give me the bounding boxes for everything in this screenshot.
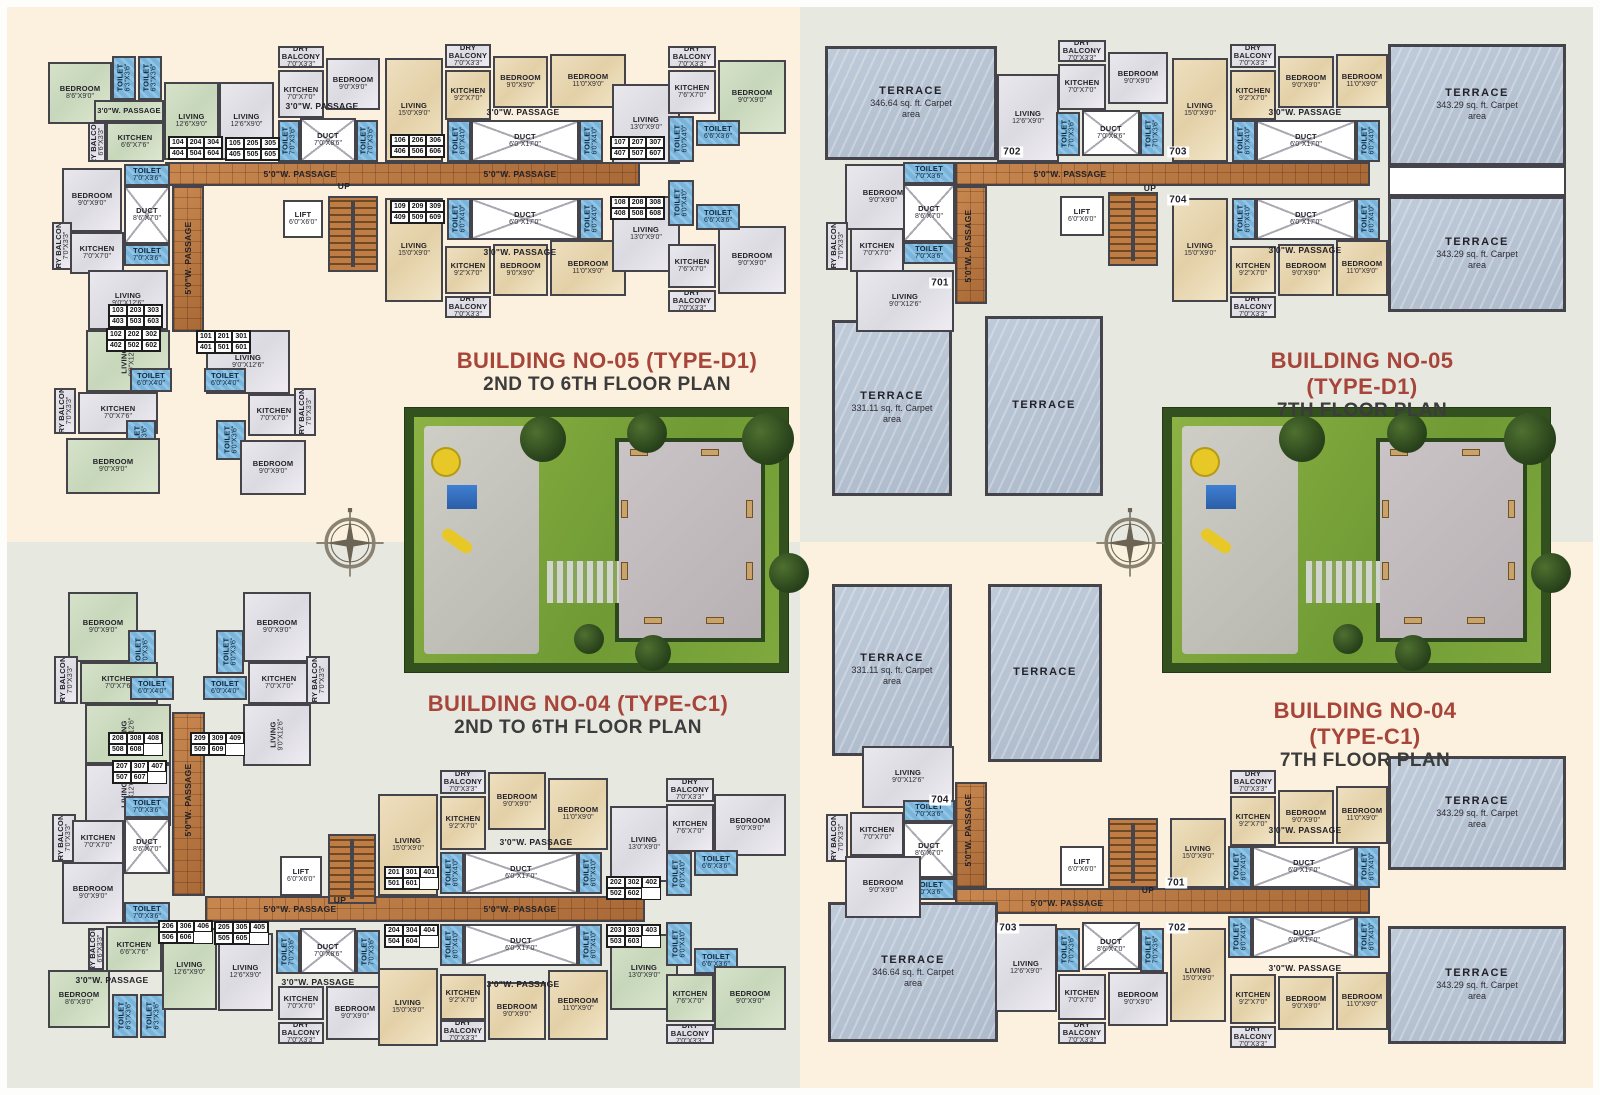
room-label: LIFT6'0"X6'0" bbox=[1068, 858, 1096, 873]
plate-row: 501601 bbox=[385, 878, 438, 889]
room-bedroom: BEDROOM9'0"X9'0" bbox=[1108, 972, 1168, 1026]
room-label: TERRACE343.29 sq. ft. Carpet area bbox=[1432, 237, 1522, 270]
room-label: KITCHEN9'2"X7'0" bbox=[1236, 262, 1271, 277]
room-label: BEDROOM9'0"X9'0" bbox=[1286, 74, 1327, 89]
unit-number-plate: 206306406506606 bbox=[158, 920, 213, 944]
bench-icon bbox=[1468, 618, 1484, 623]
room-label: KITCHEN7'0"X7'0" bbox=[81, 834, 116, 849]
room-label: KITCHEN7'6"X7'0" bbox=[673, 990, 708, 1005]
room-duct: DUCT6'0"X17'0" bbox=[464, 924, 578, 966]
plate-row: 408508608 bbox=[611, 208, 664, 219]
room-label: BEDROOM9'0"X9'0" bbox=[1286, 809, 1327, 824]
plate-row: 107207307 bbox=[611, 137, 664, 148]
room-kitchen: KITCHEN7'0"X7'0" bbox=[850, 812, 904, 856]
room-label: LIVING12'6"X9'0" bbox=[231, 113, 263, 128]
plan-label-5-0-w-passage: 5'0"W. PASSAGE bbox=[1034, 169, 1107, 179]
room-toilet: TOILET6'0"X4'0" bbox=[579, 120, 603, 162]
unit-number-plate: 108208308408508608 bbox=[610, 196, 665, 220]
plan-label-3-0-w-passage: 3'0"W. PASSAGE bbox=[286, 101, 359, 111]
room-label: LIFT6'0"X6'0" bbox=[289, 211, 317, 226]
plan-label-704: 704 bbox=[1167, 195, 1189, 206]
room-toilet: TOILET6'0"X4'0" bbox=[668, 180, 694, 226]
room-lift: LIFT6'0"X6'0" bbox=[1060, 846, 1104, 886]
room-label: TOILET6'3"X3'6" bbox=[142, 64, 157, 92]
plate-row: 104204304 bbox=[169, 137, 222, 148]
room-toilet: TOILET6'0"X4'0" bbox=[1356, 198, 1380, 240]
room-bedroom: BEDROOM9'0"X9'0" bbox=[62, 862, 124, 924]
room-bedroom: BEDROOM9'0"X9'0" bbox=[240, 440, 306, 495]
room-label: TERRACE bbox=[1012, 400, 1076, 412]
plan-label-3-0-w-passage: 3'0"W. PASSAGE bbox=[282, 977, 355, 987]
room-bedroom: BEDROOM9'0"X9'0" bbox=[243, 592, 311, 662]
room-toilet: TOILET6'0"X4'0" bbox=[447, 198, 471, 240]
room-label: LIVING15'0"X9'0" bbox=[398, 102, 430, 117]
room-label: DUCT6'0"X17'0" bbox=[1290, 211, 1322, 226]
room-label: DRY BALCONY7'0"X3'3" bbox=[57, 388, 72, 434]
floor-subtitle: 2ND TO 6TH FLOOR PLAN bbox=[457, 374, 758, 396]
room-label: TERRACE346.64 sq. ft. Carpet area bbox=[868, 955, 958, 988]
room-label: TOILET6'0"X4'0" bbox=[673, 125, 688, 153]
garden-render-left bbox=[405, 408, 788, 672]
plan-label-3-0-w-passage: 3'0"W. PASSAGE bbox=[1269, 963, 1342, 973]
room-label: KITCHEN7'0"X7'0" bbox=[860, 826, 895, 841]
bench-icon bbox=[622, 501, 627, 517]
room-label: TOILET7'0"X3'6" bbox=[1060, 120, 1075, 148]
floor-subtitle: 7TH FLOOR PLAN bbox=[1248, 750, 1483, 772]
bench-icon bbox=[1463, 450, 1479, 455]
room-label: DRY BALCONY7'0"X3'3" bbox=[447, 296, 489, 318]
plate-row: 206306406 bbox=[159, 921, 212, 932]
room-label: TOILET6'0"X4'0" bbox=[671, 860, 686, 888]
room-toilet: TOILET6'0"X4'0" bbox=[204, 368, 246, 392]
room-label: LIVING15'0"X9'0" bbox=[392, 837, 424, 852]
room-label: TERRACE343.29 sq. ft. Carpet area bbox=[1432, 968, 1522, 1001]
plan-label-703: 703 bbox=[1167, 147, 1189, 158]
bench-icon bbox=[1383, 501, 1388, 517]
room-label: TOILET6'0"X3'6" bbox=[222, 638, 237, 666]
room-label: DUCT6'0"X17'0" bbox=[505, 865, 537, 880]
room-kitchen: KITCHEN7'0"X7'0" bbox=[1058, 64, 1106, 110]
room-label: LIVING12'6"X9'0" bbox=[174, 961, 206, 976]
room-s bbox=[328, 196, 378, 272]
room-label: DRY BALCONY7'0"X3'3" bbox=[56, 814, 71, 862]
room-duct: DUCT6'0"X17'0" bbox=[1252, 916, 1356, 958]
room-label: TOILET7'0"X3'6" bbox=[1144, 120, 1159, 148]
room-kitchen: KITCHEN7'0"X7'0" bbox=[1058, 974, 1106, 1020]
room-duct: DUCT7'0"X8'6" bbox=[1082, 110, 1140, 156]
unit-number-plate: 208308408508608 bbox=[108, 732, 163, 756]
plan-label-5-0-w-passage: 5'0"W. PASSAGE bbox=[484, 904, 557, 914]
plan-label-702: 702 bbox=[1166, 923, 1188, 934]
room-label: LIVING12'6"X9'0" bbox=[1012, 110, 1044, 125]
room-toilet: TOILET7'0"X3'6" bbox=[903, 242, 955, 264]
room-label: TOILET7'0"X3'6" bbox=[1060, 936, 1075, 964]
room-toilet: TOILET6'6"X3'6" bbox=[696, 120, 740, 146]
unit-number-plate: 104204304404504604 bbox=[168, 136, 223, 160]
room-label: DUCT7'0"X8'6" bbox=[1097, 125, 1125, 140]
plate-row: 102202302 bbox=[107, 329, 160, 340]
room-dry-balcony: DRY BALCONY7'0"X3'3" bbox=[445, 44, 491, 68]
room-label: LIVING9'0"X12'6" bbox=[889, 293, 921, 308]
plate-row: 404504604 bbox=[169, 148, 222, 159]
room-label: DRY BALCONY7'0"X3'3" bbox=[297, 388, 312, 436]
room-label: TOILET6'0"X4'0" bbox=[671, 930, 686, 958]
room-toilet: TOILET6'0"X4'0" bbox=[440, 924, 464, 966]
room-kitchen: KITCHEN7'0"X7'0" bbox=[70, 232, 124, 274]
room-label: TOILET6'0"X4'0" bbox=[583, 127, 598, 155]
slide-chute-icon bbox=[1198, 527, 1233, 556]
plate-row: 105205305 bbox=[226, 138, 279, 149]
bench-icon bbox=[622, 563, 627, 579]
room-label: TOILET6'0"X4'0" bbox=[444, 931, 459, 959]
room-label: LIVING13'0"X9'0" bbox=[628, 964, 660, 979]
plate-row: 109209309 bbox=[391, 201, 444, 212]
room-label: KITCHEN7'0"X7'0" bbox=[284, 86, 319, 101]
room-kitchen: KITCHEN6'6"X7'6" bbox=[106, 926, 162, 972]
room-duct: DUCT7'0"X8'6" bbox=[300, 928, 356, 974]
room-dry-balcony: DRY BALCONY7'0"X3'3" bbox=[1058, 1022, 1106, 1044]
room-label: DRY BALCONY7'0"X3'3" bbox=[1060, 1022, 1104, 1044]
room-bedroom: BEDROOM9'0"X9'0" bbox=[714, 794, 786, 856]
room-dry-balcony: DRY BALCONY7'0"X3'3" bbox=[666, 778, 714, 802]
room-3-0-w-passage: 3'0"W. PASSAGE bbox=[94, 100, 164, 122]
bush-icon bbox=[742, 413, 794, 465]
bench-icon bbox=[747, 501, 752, 517]
room-label: BEDROOM11'0"X9'0" bbox=[1342, 73, 1383, 88]
plan-label-704: 704 bbox=[929, 795, 951, 806]
plan-title-building5-top: BUILDING NO-05 (TYPE-D1) 7TH FLOOR PLAN bbox=[1243, 348, 1481, 422]
room-label: DRY BALCONY7'0"X3'3" bbox=[447, 44, 489, 67]
room-label: KITCHEN9'2"X7'0" bbox=[446, 815, 481, 830]
room-living: LIVING9'0"X12'6" bbox=[243, 704, 311, 766]
room-kitchen: KITCHEN7'6"X7'0" bbox=[666, 804, 714, 852]
plate-row: 406506606 bbox=[391, 146, 444, 157]
floor-subtitle: 7TH FLOOR PLAN bbox=[1243, 400, 1481, 422]
room-bedroom: BEDROOM9'0"X9'0" bbox=[1108, 52, 1168, 104]
bench-icon bbox=[1509, 501, 1514, 517]
unit-number-plate: 103203303403503603 bbox=[108, 304, 163, 328]
plate-row: 201301401 bbox=[385, 867, 438, 878]
plate-row: 407507607 bbox=[611, 148, 664, 159]
room-label: TOILET7'0"X3'6" bbox=[133, 905, 161, 920]
room-label: BEDROOM9'0"X9'0" bbox=[732, 252, 773, 267]
room-label: LIVING15'0"X9'0" bbox=[1182, 967, 1214, 982]
building-title: BUILDING NO-05 (TYPE-D1) bbox=[1243, 348, 1481, 400]
bench-icon bbox=[702, 450, 718, 455]
room-label: BEDROOM8'6"X9'0" bbox=[59, 991, 100, 1006]
room-label: BEDROOM11'0"X9'0" bbox=[558, 806, 599, 821]
room-kitchen: KITCHEN9'2"X7'0" bbox=[445, 70, 491, 120]
room-kitchen: KITCHEN7'0"X7'0" bbox=[248, 662, 310, 704]
room-terrace: TERRACE346.64 sq. ft. Carpet area bbox=[828, 902, 998, 1042]
plate-row: 503603 bbox=[607, 936, 660, 947]
room-label: DRY BALCONY7'0"X3'3" bbox=[310, 656, 325, 704]
room-toilet: TOILET6'3"X3'6" bbox=[112, 994, 138, 1038]
room-living: LIVING15'0"X9'0" bbox=[378, 968, 438, 1046]
room-label: TOILET6'0"X4'0" bbox=[137, 372, 165, 387]
room-label: DRY BALCONY7'0"X3'3" bbox=[668, 778, 712, 801]
plan-label-5-0-w-passage: 5'0"W. PASSAGE bbox=[183, 764, 193, 837]
plan-label-3-0-w-passage: 3'0"W. PASSAGE bbox=[76, 975, 149, 985]
plate-row: 203303403 bbox=[607, 925, 660, 936]
room-dry-balcony: DRY BALCONY7'0"X3'3" bbox=[440, 770, 486, 794]
room-label: LIVING13'0"X9'0" bbox=[630, 226, 662, 241]
unit-number-plate: 205305405505605 bbox=[214, 921, 269, 945]
room-label: LIVING15'0"X9'0" bbox=[398, 242, 430, 257]
plan-label-5-0-w-passage: 5'0"W. PASSAGE bbox=[484, 169, 557, 179]
room-dry-balcony: DRY BALCONY7'0"X3'3" bbox=[1230, 296, 1276, 318]
room-label: TOILET6'0"X4'0" bbox=[451, 205, 466, 233]
room-toilet: TOILET6'0"X4'0" bbox=[1228, 916, 1252, 958]
plate-row: 204304404 bbox=[385, 925, 438, 936]
room-label: KITCHEN9'2"X7'0" bbox=[1236, 813, 1271, 828]
room-label: KITCHEN7'6"X7'0" bbox=[673, 820, 708, 835]
plan-label-5-0-w-passage: 5'0"W. PASSAGE bbox=[264, 904, 337, 914]
room-bedroom: BEDROOM11'0"X9'0" bbox=[1336, 972, 1388, 1030]
room-label: LIVING12'6"X9'0" bbox=[1010, 960, 1042, 975]
room-label: BEDROOM11'0"X9'0" bbox=[1342, 807, 1383, 822]
room-label: DRY BALCONY7'0"X3'3" bbox=[1232, 296, 1274, 318]
room-terrace: TERRACE331.11 sq. ft. Carpet area bbox=[832, 584, 952, 756]
play-equipment-icon bbox=[1206, 485, 1236, 509]
bench-icon bbox=[1383, 563, 1388, 579]
plan-label-3-0-w-passage: 3'0"W. PASSAGE bbox=[1269, 107, 1342, 117]
room-dry-balcony: DRY BALCONY7'0"X3'3" bbox=[278, 46, 324, 68]
room-dry-balcony: DRY BALCONY6'6"X3'3" bbox=[88, 928, 104, 970]
room-duct: DUCT8'6"X7'0" bbox=[903, 184, 955, 242]
plan-label-3-0-w-passage: 3'0"W. PASSAGE bbox=[1269, 825, 1342, 835]
room-toilet: TOILET6'0"X4'0" bbox=[579, 198, 603, 240]
room-label: TERRACE331.11 sq. ft. Carpet area bbox=[847, 653, 937, 686]
room-label: KITCHEN7'0"X7'0" bbox=[257, 407, 292, 422]
plan-title-building4-top: BUILDING NO-04 (TYPE-C1) 7TH FLOOR PLAN bbox=[1248, 698, 1483, 772]
play-area-paving bbox=[424, 426, 539, 653]
plan-label-3-0-w-passage: 3'0"W. PASSAGE bbox=[487, 107, 560, 117]
room-label: DUCT6'0"X17'0" bbox=[509, 211, 541, 226]
bench-icon bbox=[747, 563, 752, 579]
room-bedroom: BEDROOM9'0"X9'0" bbox=[326, 986, 384, 1040]
room-p bbox=[955, 162, 1370, 186]
plaza-paving bbox=[1380, 442, 1523, 637]
room-toilet: TOILET6'0"X3'6" bbox=[216, 630, 244, 674]
plan-label-up: UP bbox=[1142, 885, 1154, 895]
room-bedroom: BEDROOM9'0"X9'0" bbox=[718, 226, 786, 294]
unit-number-plate: 202302402502602 bbox=[606, 876, 661, 900]
room-bedroom: BEDROOM9'0"X9'0" bbox=[66, 438, 160, 494]
room-label: TOILET6'3"X3'6" bbox=[116, 64, 131, 92]
room-duct: DUCT6'0"X17'0" bbox=[471, 120, 579, 162]
room-label: TOILET6'6"X3'6" bbox=[704, 209, 732, 224]
room-p bbox=[955, 888, 1370, 914]
bush-icon bbox=[520, 416, 566, 462]
plate-row: 202302402 bbox=[607, 877, 660, 888]
room-toilet: TOILET7'0"X3'6" bbox=[124, 244, 170, 266]
room-label: TOILET7'0"X3'6" bbox=[133, 247, 161, 262]
room-toilet: TOILET6'0"X4'0" bbox=[666, 922, 692, 966]
room-label: BEDROOM11'0"X9'0" bbox=[1342, 993, 1383, 1008]
room-label: DRY BALCONY7'0"X3'3" bbox=[442, 1020, 484, 1042]
room-dry-balcony: DRY BALCONY7'0"X3'3" bbox=[1058, 40, 1106, 62]
room-label: TOILET6'0"X4'0" bbox=[211, 372, 239, 387]
plan-label-5-0-w-passage: 5'0"W. PASSAGE bbox=[963, 210, 973, 283]
slide-chute-icon bbox=[440, 527, 475, 556]
compass-icon bbox=[315, 508, 385, 578]
room-living: LIVING12'6"X9'0" bbox=[995, 924, 1057, 1012]
room-label: BEDROOM9'0"X9'0" bbox=[335, 1005, 376, 1020]
plan-label-3-0-w-passage: 3'0"W. PASSAGE bbox=[487, 979, 560, 989]
room-label: BEDROOM9'0"X9'0" bbox=[253, 460, 294, 475]
room-dry-balcony: DRY BALCONY7'0"X3'3" bbox=[440, 1020, 486, 1042]
room-label: DUCT6'0"X17'0" bbox=[1288, 859, 1320, 874]
plan-title-building5-lower: BUILDING NO-05 (TYPE-D1) 2ND TO 6TH FLOO… bbox=[457, 348, 758, 396]
bush-icon bbox=[574, 624, 604, 654]
room-dry-balcony: DRY BALCONY7'0"X3'3" bbox=[1230, 1026, 1276, 1048]
room-label: KITCHEN7'0"X7'0" bbox=[80, 245, 115, 260]
room-toilet: TOILET6'0"X4'0" bbox=[1356, 120, 1380, 162]
room-toilet: TOILET6'0"X4'0" bbox=[203, 676, 247, 700]
room-label: BEDROOM9'0"X9'0" bbox=[730, 990, 771, 1005]
room-p bbox=[165, 162, 640, 186]
room-label: TOILET6'0"X4'0" bbox=[138, 680, 166, 695]
room-terrace: TERRACE331.11 sq. ft. Carpet area bbox=[832, 320, 952, 496]
room-label: TERRACE331.11 sq. ft. Carpet area bbox=[847, 391, 937, 424]
plan-label-702: 702 bbox=[1001, 147, 1023, 158]
room-label: KITCHEN9'2"X7'0" bbox=[1236, 87, 1271, 102]
bush-icon bbox=[1279, 416, 1325, 462]
plan-label-up: UP bbox=[1144, 183, 1156, 193]
room-label: TOILET6'0"X4'0" bbox=[1360, 853, 1375, 881]
building-title: BUILDING NO-04 (TYPE-C1) bbox=[428, 691, 729, 717]
bench-icon bbox=[645, 618, 661, 623]
room-label: TERRACE343.29 sq. ft. Carpet area bbox=[1432, 796, 1522, 829]
room-bedroom: BEDROOM9'0"X9'0" bbox=[845, 856, 921, 918]
room-label: TOILET7'0"X3'6" bbox=[359, 127, 374, 155]
room-label: DRY BALCONY7'0"X3'3" bbox=[829, 222, 844, 270]
slide-top-icon bbox=[1192, 449, 1218, 475]
plate-row: 401501601 bbox=[197, 342, 250, 353]
room-label: TOILET7'0"X3'6" bbox=[133, 167, 161, 182]
room-label: DUCT7'0"X8'6" bbox=[314, 943, 342, 958]
room-label: BEDROOM11'0"X9'0" bbox=[568, 73, 609, 88]
play-area-paving bbox=[1182, 426, 1298, 653]
room-label: DUCT6'0"X17'0" bbox=[1290, 133, 1322, 148]
plaza-paving bbox=[619, 442, 761, 637]
room-label: DRY BALCONY7'0"X3'3" bbox=[1232, 44, 1274, 67]
room-label: BEDROOM9'0"X9'0" bbox=[83, 619, 124, 634]
room-toilet: TOILET6'3"X3'6" bbox=[138, 56, 162, 100]
room-label: BEDROOM9'0"X9'0" bbox=[1118, 70, 1159, 85]
room-toilet: TOILET6'0"X4'0" bbox=[666, 852, 692, 896]
plate-row: 402502602 bbox=[107, 340, 160, 351]
room-label: KITCHEN9'2"X7'0" bbox=[1236, 991, 1271, 1006]
room-label: DRY BALCONY7'0"X3'3" bbox=[442, 770, 484, 793]
plan-label-3-0-w-passage: 3'0"W. PASSAGE bbox=[500, 837, 573, 847]
room-label: BEDROOM11'0"X9'0" bbox=[568, 260, 609, 275]
room-bedroom: BEDROOM11'0"X9'0" bbox=[1336, 786, 1388, 844]
room-bedroom: BEDROOM9'0"X9'0" bbox=[488, 772, 546, 830]
room-label: TOILET6'0"X4'0" bbox=[673, 189, 688, 217]
room-label: DRY BALCONY7'0"X3'3" bbox=[829, 814, 844, 862]
bench-icon bbox=[1405, 618, 1421, 623]
bush-icon bbox=[1504, 413, 1556, 465]
unit-number-plate: 203303403503603 bbox=[606, 924, 661, 948]
bench-icon bbox=[707, 618, 723, 623]
room-label: LIVING15'0"X9'0" bbox=[1184, 102, 1216, 117]
room-label: TOILET6'0"X4'0" bbox=[1236, 127, 1251, 155]
room-kitchen: KITCHEN9'2"X7'0" bbox=[1230, 974, 1276, 1024]
room-label: TOILET6'0"X4'0" bbox=[1236, 205, 1251, 233]
unit-number-plate: 209309409509609 bbox=[190, 732, 245, 756]
unit-number-plate: 204304404504604 bbox=[384, 924, 439, 948]
room-kitchen: KITCHEN9'2"X7'0" bbox=[1230, 796, 1276, 846]
room-label: BEDROOM9'0"X9'0" bbox=[1286, 995, 1327, 1010]
plan-label-3-0-w-passage: 3'0"W. PASSAGE bbox=[1269, 245, 1342, 255]
room-toilet: TOILET7'0"X3'6" bbox=[1140, 928, 1164, 972]
room-label: LIVING15'0"X9'0" bbox=[392, 999, 424, 1014]
room-s bbox=[328, 834, 376, 904]
room-s bbox=[1108, 818, 1158, 888]
plan-label-up: UP bbox=[334, 895, 346, 905]
plan-label-5-0-w-passage: 5'0"W. PASSAGE bbox=[264, 169, 337, 179]
room-label: KITCHEN9'2"X7'0" bbox=[451, 87, 486, 102]
play-equipment-icon bbox=[447, 485, 477, 509]
room-toilet: TOILET6'0"X4'0" bbox=[1228, 846, 1252, 888]
room-duct: DUCT6'0"X17'0" bbox=[1252, 846, 1356, 888]
room-label: DRY BALCONY7'0"X3'3" bbox=[58, 656, 73, 704]
plate-row: 209309409 bbox=[191, 733, 244, 744]
room-toilet: TOILET6'0"X4'0" bbox=[578, 924, 602, 966]
room-label: KITCHEN7'0"X7'0" bbox=[284, 995, 319, 1010]
room-toilet: TOILET6'6"X3'6" bbox=[694, 850, 738, 876]
room-label: LIVING9'0"X12'6" bbox=[892, 769, 924, 784]
room-bedroom: BEDROOM9'0"X9'0" bbox=[493, 56, 548, 108]
room-bedroom: BEDROOM11'0"X9'0" bbox=[1336, 240, 1388, 296]
garden-render-right bbox=[1163, 408, 1550, 672]
plan-label-701: 701 bbox=[1165, 878, 1187, 889]
room-toilet: TOILET6'0"X4'0" bbox=[447, 120, 471, 162]
room-toilet: TOILET7'0"X3'6" bbox=[1140, 112, 1164, 156]
room-label: TOILET7'0"X3'6" bbox=[915, 165, 943, 180]
room-label: TERRACE346.64 sq. ft. Carpet area bbox=[866, 86, 956, 119]
room-label: TOILET7'0"X3'6" bbox=[915, 245, 943, 260]
room-duct: DUCT8'6"X7'0" bbox=[124, 186, 170, 244]
bush-icon bbox=[1395, 635, 1431, 671]
room-duct: DUCT7'0"X8'6" bbox=[300, 118, 356, 162]
room-dry-balcony: DRY BALCONY7'0"X3'3" bbox=[294, 388, 316, 436]
room-label: TOILET6'0"X4'0" bbox=[1360, 923, 1375, 951]
room-label: DUCT8'6"X7'0" bbox=[915, 205, 943, 220]
room-label: DRY BALCONY7'0"X3'3" bbox=[280, 1022, 322, 1044]
unit-number-plate: 107207307407507607 bbox=[610, 136, 665, 160]
room-toilet: TOILET6'0"X4'0" bbox=[1232, 198, 1256, 240]
plate-row: 409509609 bbox=[391, 212, 444, 223]
room-label: DRY BALCONY7'0"X3'3" bbox=[1232, 1026, 1274, 1048]
plate-row: 505605 bbox=[215, 933, 268, 944]
compass-icon bbox=[1095, 508, 1165, 578]
room-label: LIVING15'0"X9'0" bbox=[1182, 845, 1214, 860]
room-terrace: TERRACE346.64 sq. ft. Carpet area bbox=[825, 46, 997, 160]
room-label: BEDROOM8'6"X9'0" bbox=[60, 85, 101, 100]
room-toilet: TOILET7'0"X3'6" bbox=[1056, 928, 1080, 972]
room-dry-balcony: DRY BALCONY7'0"X3'3" bbox=[1230, 44, 1276, 68]
walkway-path bbox=[1306, 561, 1380, 603]
room-toilet: TOILET6'3"X3'6" bbox=[112, 56, 136, 100]
room-label: 3'0"W. PASSAGE bbox=[97, 107, 160, 115]
room-label: DUCT8'6"X7'0" bbox=[133, 838, 161, 853]
room-label: KITCHEN7'0"X7'0" bbox=[1065, 989, 1100, 1004]
plan-label-701: 701 bbox=[929, 278, 951, 289]
room-label: DRY BALCONY6'6"X3'3" bbox=[89, 122, 104, 162]
